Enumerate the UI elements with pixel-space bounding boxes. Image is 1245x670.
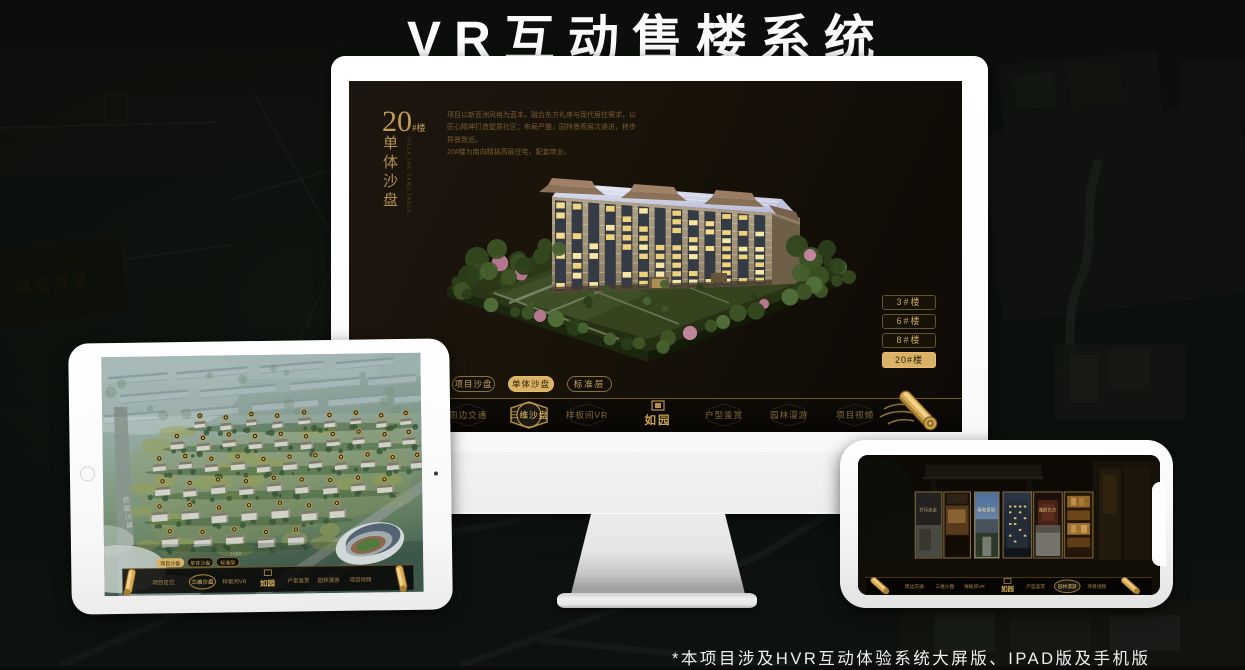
- svg-text:单体沙盘: 单体沙盘: [190, 560, 210, 567]
- svg-text:1568: 1568: [230, 551, 241, 557]
- svg-text:如园: 如园: [1001, 584, 1014, 593]
- svg-text:春和景明: 春和景明: [977, 506, 995, 513]
- svg-text:样板间VR: 样板间VR: [964, 583, 985, 590]
- svg-text:雅韵东方: 雅韵东方: [1039, 506, 1057, 513]
- svg-text:岁月流金: 岁月流金: [919, 506, 937, 513]
- svg-text:户型鉴赏: 户型鉴赏: [1026, 583, 1045, 590]
- svg-text:项目视频: 项目视频: [1087, 583, 1106, 590]
- svg-text:项目沙盘: 项目沙盘: [160, 560, 180, 567]
- svg-text:周边交通: 周边交通: [905, 583, 924, 590]
- svg-text:如园: 如园: [260, 578, 276, 588]
- svg-text:园林漫游: 园林漫游: [1058, 583, 1077, 590]
- svg-text:三维沙盘: 三维沙盘: [935, 583, 954, 590]
- svg-text:标准层: 标准层: [220, 559, 235, 566]
